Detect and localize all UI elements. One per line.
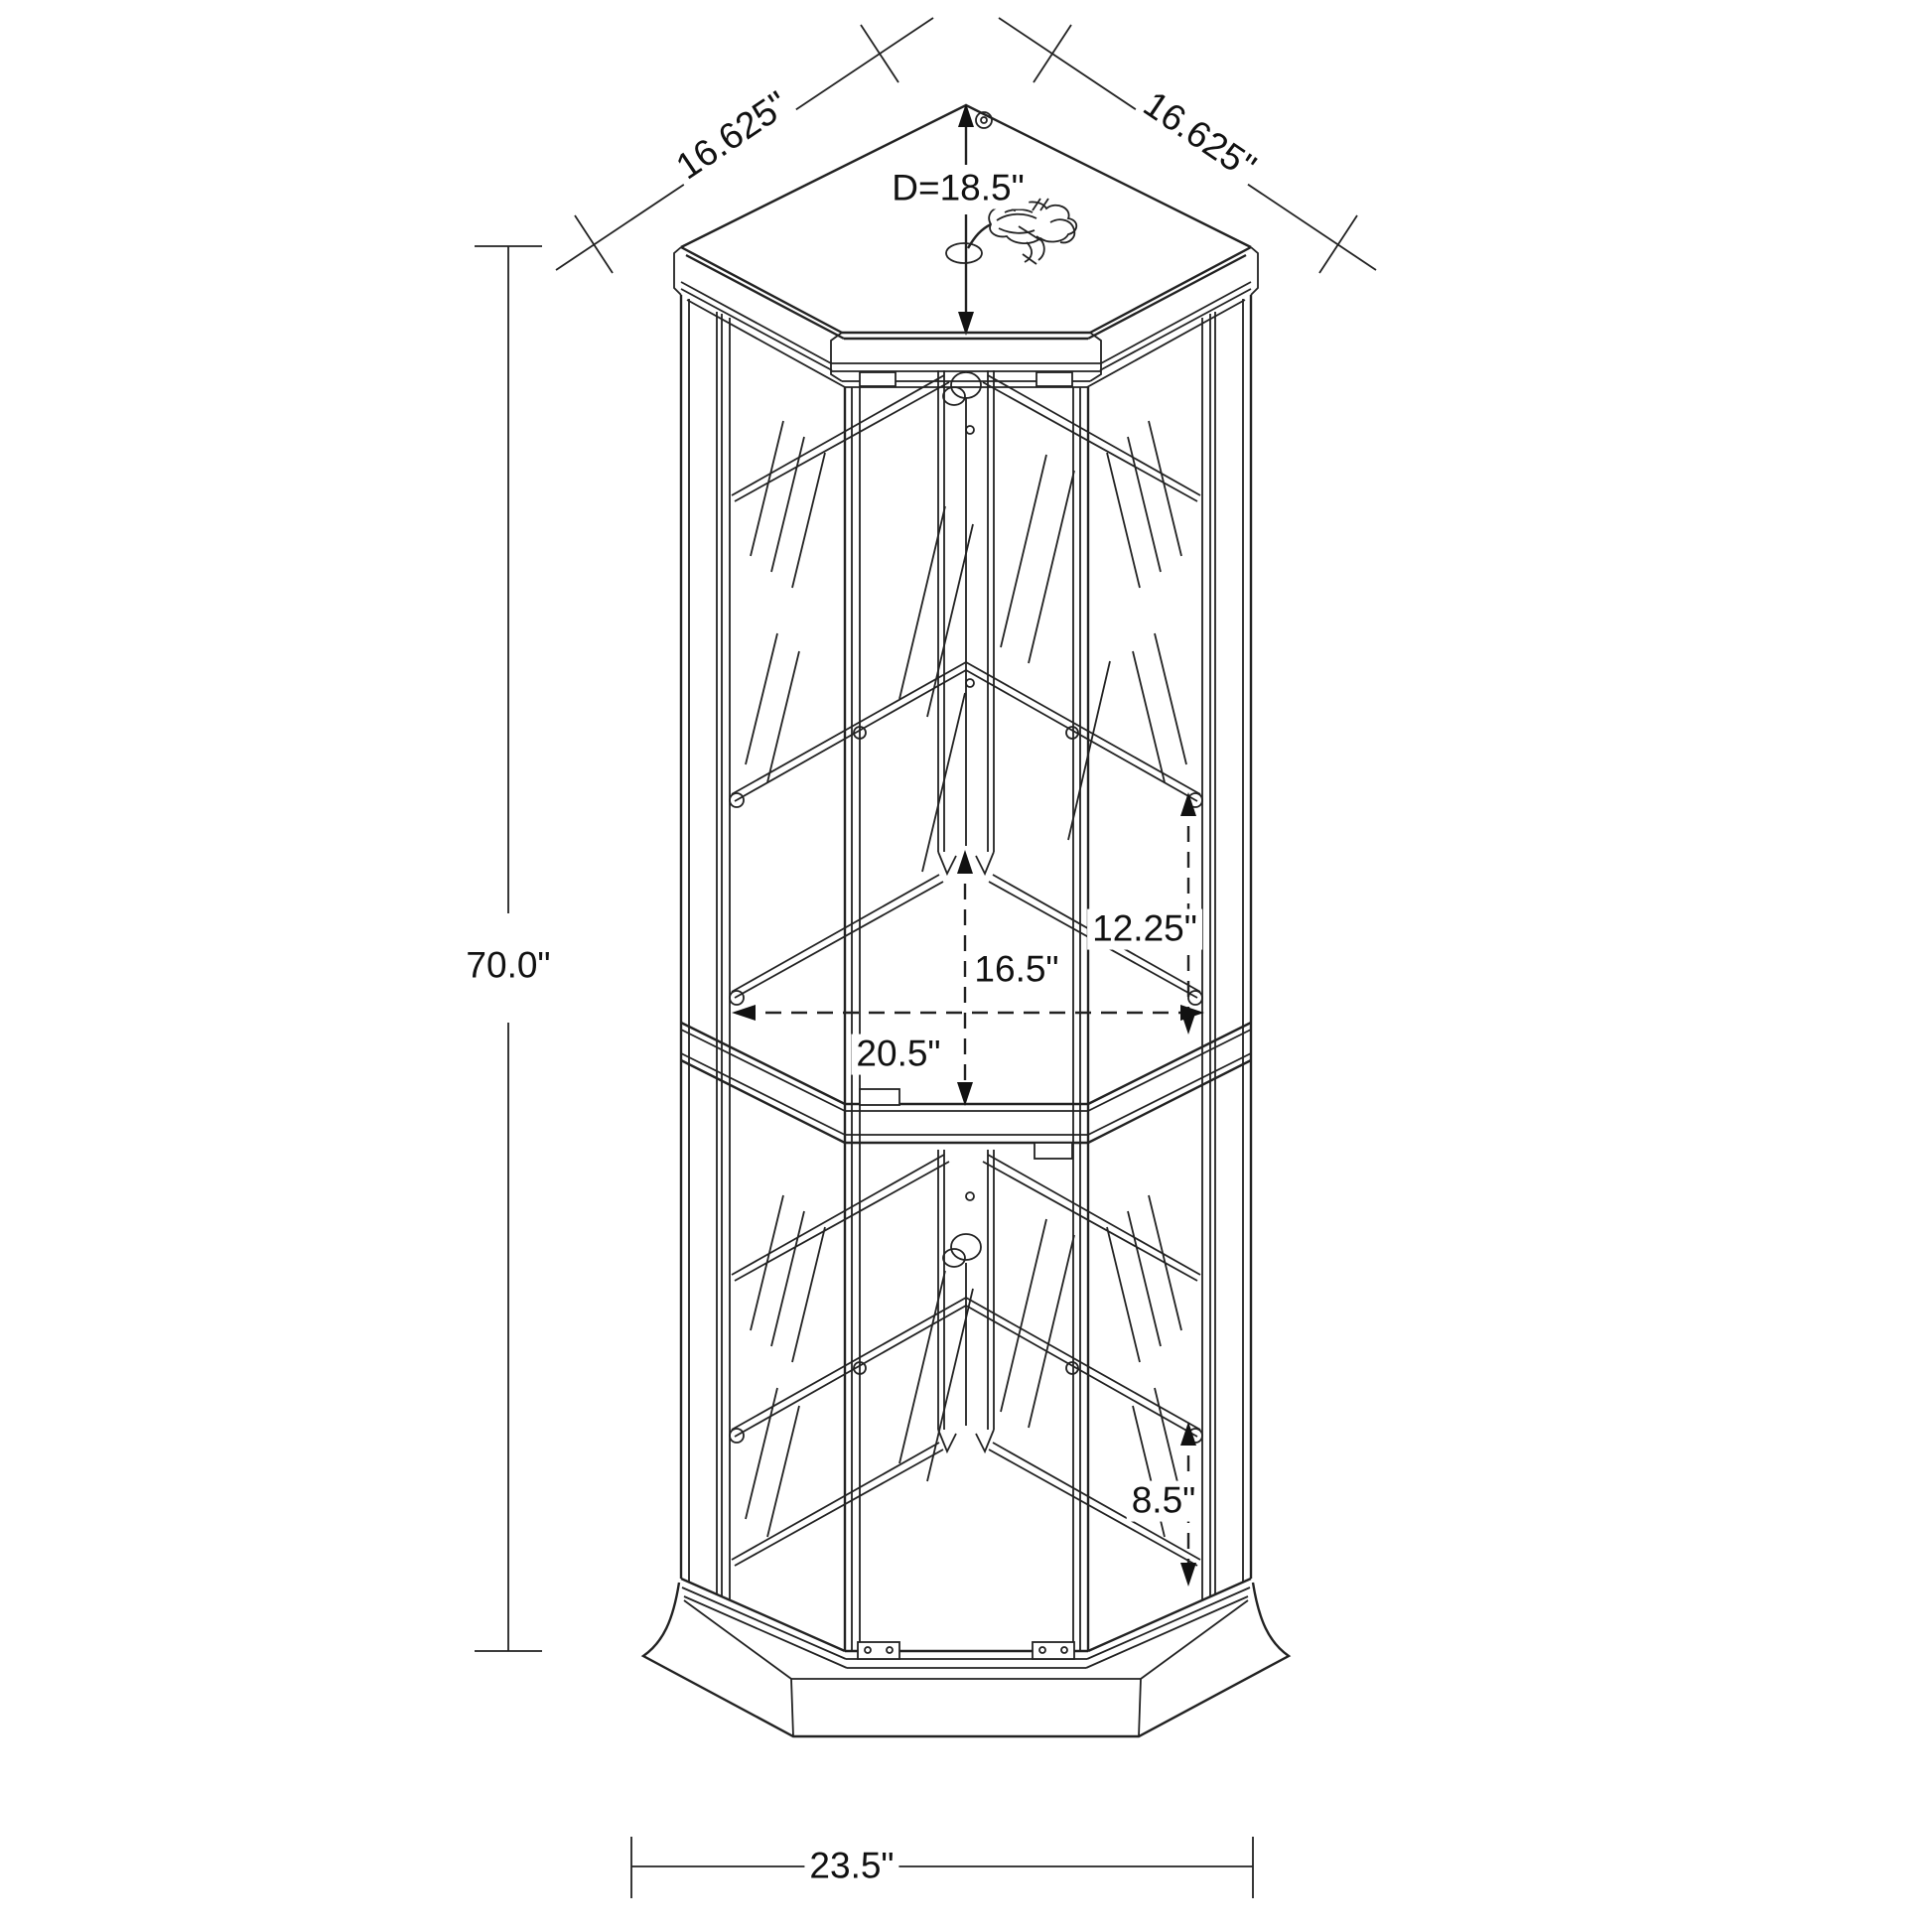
middle-shelf-spacing-label: 16.5": [969, 950, 1063, 991]
diagram-canvas: 70.0" 23.5" 16.625" 16.625" D=18.5" 12.2…: [0, 0, 1932, 1932]
base-width-label: 23.5": [804, 1847, 898, 1887]
corner-curio-cabinet-drawing: [0, 0, 1932, 1932]
interior-width-label: 20.5": [851, 1035, 945, 1075]
top-depth-label: D=18.5": [887, 169, 1029, 209]
upper-shelf-spacing-label: 12.25": [1087, 909, 1202, 950]
left-post: [681, 295, 730, 1599]
right-post: [1202, 295, 1251, 1599]
lower-shelf-spacing-label: 8.5": [1127, 1481, 1201, 1522]
dimension-top-diagonal: [958, 103, 974, 336]
overall-height-label: 70.0": [461, 946, 555, 987]
dimension-interior-width: [732, 1005, 1204, 1021]
dimension-base-width: [631, 1837, 1253, 1898]
base-plinth: [643, 1579, 1289, 1736]
